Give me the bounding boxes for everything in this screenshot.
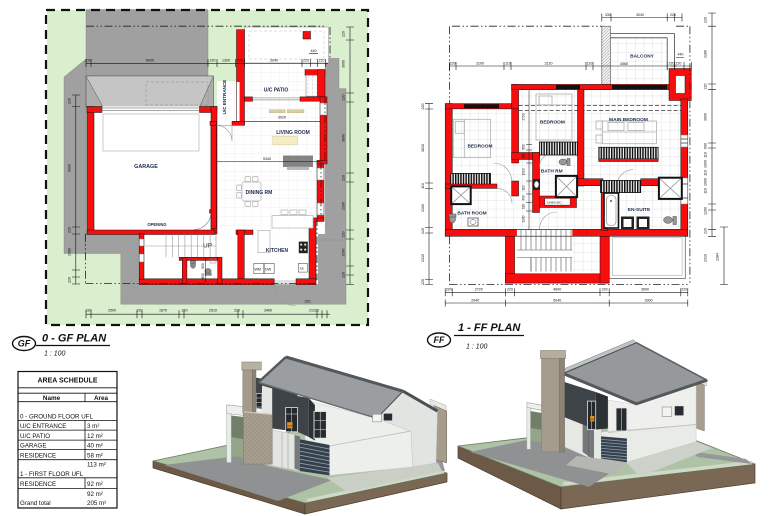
svg-text:220: 220 <box>704 17 708 23</box>
svg-text:MAIN BEDROOM: MAIN BEDROOM <box>609 117 648 123</box>
svg-text:BEDROOM: BEDROOM <box>540 120 565 126</box>
svg-text:4560: 4560 <box>620 62 628 66</box>
svg-text:3890: 3890 <box>342 134 346 142</box>
svg-text:205 m²: 205 m² <box>87 500 106 507</box>
svg-text:3690: 3690 <box>641 288 649 292</box>
svg-text:220: 220 <box>210 59 216 63</box>
svg-text:2720: 2720 <box>475 288 483 292</box>
svg-text:RESIDENCE: RESIDENCE <box>20 481 56 488</box>
svg-text:12 m²: 12 m² <box>87 433 103 440</box>
svg-text:1000: 1000 <box>704 160 708 168</box>
svg-text:220: 220 <box>450 61 456 65</box>
svg-text:110: 110 <box>704 170 708 176</box>
svg-text:3120: 3120 <box>545 61 553 65</box>
svg-text:220: 220 <box>704 228 708 234</box>
svg-text:220: 220 <box>234 309 240 313</box>
svg-text:LINEN B/C: LINEN B/C <box>547 201 563 205</box>
svg-text:220: 220 <box>305 300 311 304</box>
svg-text:110: 110 <box>522 204 526 209</box>
svg-text:3040: 3040 <box>270 59 278 63</box>
svg-text:GF: GF <box>18 339 31 349</box>
svg-text:FF: FF <box>434 335 445 345</box>
svg-text:U/C PATIO: U/C PATIO <box>20 433 50 440</box>
svg-text:1910: 1910 <box>522 168 526 175</box>
svg-text:600: 600 <box>704 143 708 149</box>
svg-text:110: 110 <box>587 61 593 65</box>
svg-text:220: 220 <box>342 31 346 37</box>
svg-text:2940: 2940 <box>471 298 479 302</box>
svg-text:DINING RM: DINING RM <box>246 190 273 196</box>
svg-text:5040: 5040 <box>553 298 561 302</box>
svg-text:DW: DW <box>265 268 272 272</box>
svg-text:1 : 100: 1 : 100 <box>466 344 488 351</box>
svg-text:2310: 2310 <box>704 254 708 262</box>
svg-text:440: 440 <box>311 49 317 53</box>
svg-text:220: 220 <box>670 13 676 17</box>
svg-text:113 m²: 113 m² <box>87 462 106 469</box>
svg-text:3900: 3900 <box>645 298 653 302</box>
svg-text:220: 220 <box>421 228 425 234</box>
svg-text:BATH RM: BATH RM <box>541 169 563 175</box>
svg-text:21220: 21220 <box>309 309 319 313</box>
svg-text:220: 220 <box>86 309 92 313</box>
svg-text:Grand total: Grand total <box>20 500 51 507</box>
svg-text:600: 600 <box>201 273 205 279</box>
svg-text:BEDROOM: BEDROOM <box>467 144 492 150</box>
svg-text:220: 220 <box>507 288 513 292</box>
svg-text:5340: 5340 <box>263 157 271 161</box>
svg-text:2500: 2500 <box>108 309 116 313</box>
svg-text:3000: 3000 <box>704 113 708 121</box>
svg-text:92 m²: 92 m² <box>87 491 103 498</box>
svg-text:Name: Name <box>43 395 61 402</box>
svg-text:EN-SUITE: EN-SUITE <box>628 207 651 213</box>
svg-text:220: 220 <box>86 59 92 63</box>
svg-text:UL: UL <box>300 267 304 271</box>
svg-text:220: 220 <box>421 104 425 110</box>
svg-text:2160: 2160 <box>421 204 425 212</box>
svg-text:220: 220 <box>342 232 346 238</box>
svg-text:GARAGE: GARAGE <box>134 164 158 170</box>
svg-text:3100: 3100 <box>476 61 484 65</box>
svg-text:1670: 1670 <box>159 309 167 313</box>
svg-text:490: 490 <box>522 195 526 201</box>
svg-text:1000: 1000 <box>704 178 708 186</box>
svg-text:220: 220 <box>182 309 188 313</box>
svg-text:220: 220 <box>68 98 72 104</box>
svg-text:0 - GF PLAN: 0 - GF PLAN <box>42 333 107 345</box>
svg-text:3020: 3020 <box>278 115 286 119</box>
svg-text:1 : 100: 1 : 100 <box>44 351 66 358</box>
svg-text:U/C PATIO: U/C PATIO <box>264 87 289 93</box>
svg-text:58 m²: 58 m² <box>87 453 103 460</box>
svg-text:OPENING: OPENING <box>147 222 166 227</box>
svg-text:4600: 4600 <box>553 288 561 292</box>
svg-text:GARAGE: GARAGE <box>20 443 46 450</box>
svg-text:110: 110 <box>704 152 708 158</box>
svg-text:110: 110 <box>421 183 425 189</box>
svg-text:220: 220 <box>675 61 681 65</box>
svg-text:2790: 2790 <box>522 113 526 120</box>
svg-text:600: 600 <box>522 144 526 150</box>
svg-text:3810: 3810 <box>421 144 425 152</box>
svg-text:220: 220 <box>342 272 346 278</box>
svg-text:KITCHEN: KITCHEN <box>266 248 289 254</box>
svg-text:220: 220 <box>137 309 143 313</box>
svg-text:BATH ROOM: BATH ROOM <box>457 211 486 217</box>
svg-text:2384: 2384 <box>716 253 720 261</box>
svg-text:Area: Area <box>94 395 108 402</box>
svg-text:220: 220 <box>342 95 346 101</box>
svg-text:600: 600 <box>201 263 205 269</box>
svg-text:220: 220 <box>342 175 346 181</box>
svg-text:6000: 6000 <box>68 164 72 172</box>
svg-text:0 - GROUND FLOOR UFL: 0 - GROUND FLOOR UFL <box>20 414 93 421</box>
svg-text:6000: 6000 <box>146 59 154 63</box>
svg-text:2510: 2510 <box>209 309 217 313</box>
svg-text:BALCONY: BALCONY <box>630 54 655 60</box>
svg-text:220: 220 <box>602 288 608 292</box>
svg-text:220: 220 <box>68 277 72 283</box>
svg-text:2090: 2090 <box>342 249 346 257</box>
svg-text:UP: UP <box>203 243 212 250</box>
svg-text:2390: 2390 <box>68 248 72 256</box>
svg-text:220: 220 <box>319 59 325 63</box>
svg-text:2280: 2280 <box>704 50 708 58</box>
svg-text:WM: WM <box>255 268 261 272</box>
svg-text:220: 220 <box>446 288 452 292</box>
svg-text:1 - FIRST FLOOR UFL: 1 - FIRST FLOOR UFL <box>20 471 84 478</box>
svg-text:330: 330 <box>605 13 611 17</box>
svg-text:220: 220 <box>704 84 708 90</box>
svg-text:440: 440 <box>678 53 684 57</box>
svg-text:U/C ENTRANCE: U/C ENTRANCE <box>20 423 66 430</box>
svg-text:220: 220 <box>303 59 309 63</box>
svg-text:U/C ENTRANCE: U/C ENTRANCE <box>222 80 227 115</box>
svg-text:1290: 1290 <box>704 207 708 215</box>
svg-text:2390: 2390 <box>342 202 346 210</box>
svg-text:RESIDENCE: RESIDENCE <box>20 453 56 460</box>
svg-text:220: 220 <box>421 279 425 285</box>
svg-text:110: 110 <box>522 153 526 158</box>
svg-text:3 m²: 3 m² <box>87 423 99 430</box>
svg-text:AREA SCHEDULE: AREA SCHEDULE <box>37 378 97 385</box>
svg-text:1100: 1100 <box>522 215 526 222</box>
svg-text:3040: 3040 <box>636 13 644 17</box>
svg-text:92 m²: 92 m² <box>87 481 103 488</box>
svg-text:220: 220 <box>237 59 243 63</box>
svg-text:2310: 2310 <box>421 254 425 262</box>
svg-text:110: 110 <box>505 61 511 65</box>
svg-text:110: 110 <box>522 185 526 190</box>
svg-text:1300: 1300 <box>222 59 230 63</box>
svg-text:110: 110 <box>704 188 708 194</box>
svg-text:3460: 3460 <box>264 309 272 313</box>
svg-text:220: 220 <box>669 62 675 66</box>
svg-text:40 m²: 40 m² <box>87 443 103 450</box>
svg-text:220: 220 <box>681 288 687 292</box>
svg-text:1 - FF PLAN: 1 - FF PLAN <box>458 322 521 334</box>
svg-text:LIVING ROOM: LIVING ROOM <box>276 130 310 136</box>
svg-text:220: 220 <box>68 227 72 233</box>
svg-text:3000: 3000 <box>342 60 346 68</box>
